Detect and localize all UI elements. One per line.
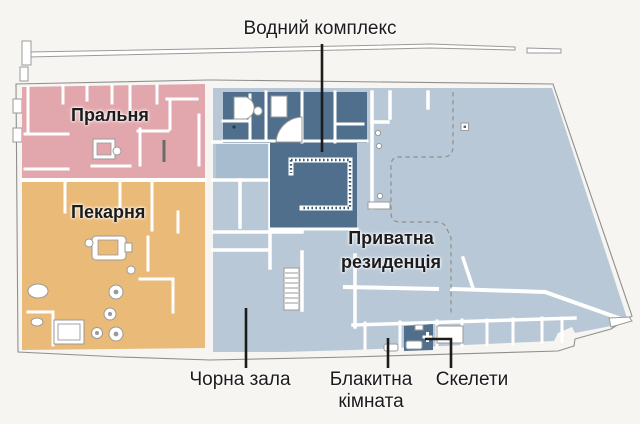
skeletons-label: Скелети [436,369,509,391]
infographic-canvas: Водний комплекс Пральня Пекарня Приватна… [0,0,640,424]
black-hall-label: Чорна зала [189,369,290,391]
gate-pier [22,41,31,65]
street-wall [28,44,515,57]
street-wall-segment [527,48,561,53]
blue-room-label: Блакитна кімната [315,369,427,413]
laundry-label: Пральня [71,103,149,127]
blue-room-bed [406,341,422,349]
water-complex-label: Водний комплекс [243,18,396,40]
bakery-label: Пекарня [71,200,145,224]
labrum [271,96,287,117]
blue-room [404,324,433,351]
bath-apse [234,97,254,119]
laundry-region [22,84,205,180]
atrium-room [216,144,268,179]
tip-foot [609,317,632,327]
staircase [284,268,299,310]
private-residence-label: Приватна резиденція [329,226,453,274]
